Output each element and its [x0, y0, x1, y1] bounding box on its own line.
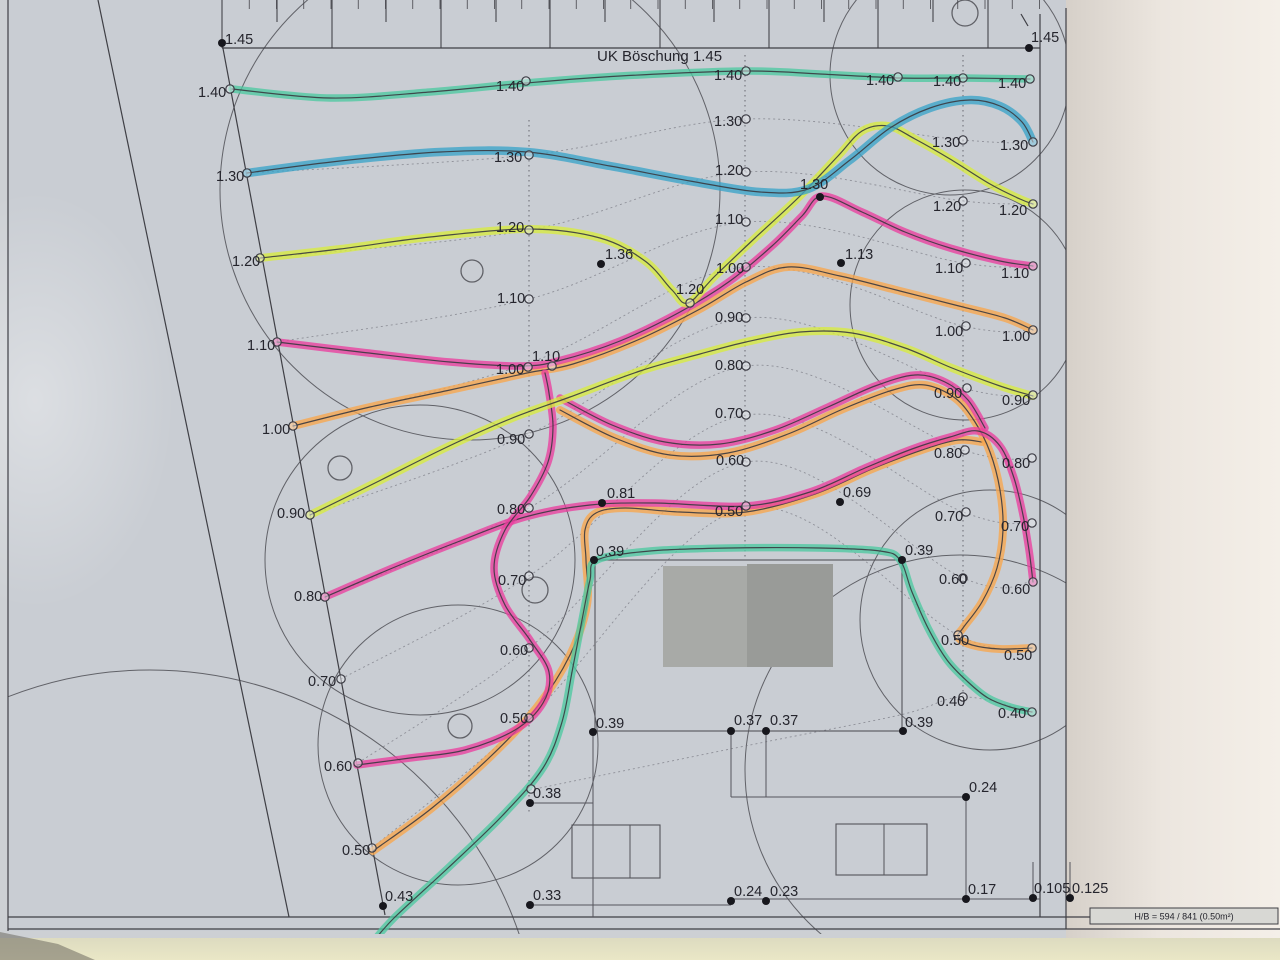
elevation-label: 0.38 [533, 786, 561, 802]
elevation-label: 1.10 [935, 261, 963, 277]
elevation-label: 1.20 [676, 282, 704, 298]
elevation-label: 1.30 [800, 177, 828, 193]
building-roof [747, 564, 833, 667]
elevation-label: 1.36 [605, 247, 633, 263]
elevation-label: 1.30 [932, 135, 960, 151]
elevation-label: 1.20 [496, 220, 524, 236]
station-circle [525, 504, 533, 512]
elevation-label: 0.50 [342, 843, 370, 859]
elevation-label: 0.70 [935, 509, 963, 525]
station-circle [963, 384, 971, 392]
elevation-label: 1.00 [496, 362, 524, 378]
elevation-label: 0.17 [968, 882, 996, 898]
elevation-label: 1.20 [933, 199, 961, 215]
elevation-label: 1.40 [998, 76, 1026, 92]
plan-title: UK Böschung 1.45 [597, 48, 722, 65]
elevation-label: 0.90 [934, 386, 962, 402]
elevation-label: 0.39 [905, 543, 933, 559]
spot-dot [837, 259, 845, 267]
elevation-label: 1.00 [1002, 329, 1030, 345]
elevation-label: 0.50 [500, 711, 528, 727]
elevation-label: 1.30 [1000, 138, 1028, 154]
elevation-label: 0.24 [734, 884, 762, 900]
elevation-label: 0.105 [1034, 881, 1070, 897]
elevation-label: 0.24 [969, 780, 997, 796]
elevation-label: 0.80 [497, 502, 525, 518]
elevation-label: 0.60 [939, 572, 967, 588]
plan-title-group: UK Böschung 1.45 [597, 48, 722, 65]
station-circle [1028, 708, 1036, 716]
station-circle [1029, 138, 1037, 146]
elevation-label: 0.37 [734, 713, 762, 729]
elevation-label: 1.40 [866, 73, 894, 89]
station-circle [306, 511, 314, 519]
station-circle [524, 363, 532, 371]
scale-note-text: H/B = 594 / 841 (0.50m²) [1134, 912, 1233, 922]
elevation-label: 0.50 [715, 504, 743, 520]
station-circle [686, 299, 694, 307]
elevation-label: 1.40 [933, 74, 961, 90]
elevation-label: 1.30 [714, 114, 742, 130]
elevation-label: 1.20 [715, 163, 743, 179]
station-circle [894, 73, 902, 81]
elevation-label: 1.20 [999, 203, 1027, 219]
elevation-label: 1.30 [494, 150, 522, 166]
station-circle [337, 675, 345, 683]
elevation-label: 0.33 [533, 888, 561, 904]
elevation-label: 0.80 [715, 358, 743, 374]
elevation-label: 1.10 [247, 338, 275, 354]
elevation-label: 1.40 [496, 79, 524, 95]
station-circle [1029, 262, 1037, 270]
elevation-label: 0.70 [498, 573, 526, 589]
building-roof [663, 566, 747, 667]
elevation-label: 0.39 [905, 715, 933, 731]
elevation-label: 1.10 [1001, 266, 1029, 282]
elevation-label: 0.60 [500, 643, 528, 659]
elevation-label: 0.80 [294, 589, 322, 605]
elevation-label: 1.13 [845, 247, 873, 263]
elevation-label: 0.81 [607, 486, 635, 502]
elevation-label: 0.43 [385, 889, 413, 905]
station-circle [1026, 75, 1034, 83]
elevation-label: 1.45 [1031, 30, 1059, 46]
elevation-label: 0.70 [715, 406, 743, 422]
elevation-label: 0.90 [277, 506, 305, 522]
elevation-label: 0.80 [934, 446, 962, 462]
site-plan-svg: 1.451.401.301.201.101.000.900.800.700.60… [0, 0, 1280, 960]
station-circle [742, 67, 750, 75]
elevation-label: 1.00 [935, 324, 963, 340]
elevation-label: 0.90 [715, 310, 743, 326]
elevation-label: 1.00 [716, 261, 744, 277]
elevation-label: 1.10 [532, 349, 560, 365]
elevation-label: 1.00 [262, 422, 290, 438]
elevation-label: 0.90 [1002, 393, 1030, 409]
elevation-label: 1.10 [497, 291, 525, 307]
elevation-label: 0.40 [998, 706, 1026, 722]
elevation-label: 1.20 [232, 254, 260, 270]
spot-dot [762, 727, 770, 735]
elevation-label: 1.30 [216, 169, 244, 185]
elevation-label: 0.60 [324, 759, 352, 775]
elevation-label: 0.50 [1004, 648, 1032, 664]
elevation-label: 0.50 [941, 633, 969, 649]
elevation-label: 1.40 [198, 85, 226, 101]
elevation-label: 0.69 [843, 485, 871, 501]
scale-note-box: H/B = 594 / 841 (0.50m²) [1090, 908, 1278, 924]
station-circle [1029, 200, 1037, 208]
station-circle [525, 430, 533, 438]
station-circle [742, 115, 750, 123]
elevation-label: 0.60 [716, 453, 744, 469]
spot-dot [816, 193, 824, 201]
elevation-label: 0.39 [596, 716, 624, 732]
elevation-label: 0.40 [937, 694, 965, 710]
spot-dot [598, 499, 606, 507]
elevation-label: 0.23 [770, 884, 798, 900]
spot-dot [762, 897, 770, 905]
elevation-label: 0.70 [308, 674, 336, 690]
elevation-label: 1.10 [715, 212, 743, 228]
elevation-label: 0.37 [770, 713, 798, 729]
elevation-label: 0.70 [1001, 519, 1029, 535]
table-surface [0, 938, 1280, 960]
elevation-label: 0.60 [1002, 582, 1030, 598]
station-circle [525, 226, 533, 234]
station-circle [525, 151, 533, 159]
photographed-site-plan: 1.451.401.301.201.101.000.900.800.700.60… [0, 0, 1280, 960]
elevation-label: 0.39 [596, 544, 624, 560]
right-paper-margin [1066, 0, 1280, 945]
elevation-label: 0.125 [1072, 881, 1108, 897]
elevation-label: 0.90 [497, 432, 525, 448]
station-circle [525, 295, 533, 303]
elevation-label: 1.40 [714, 68, 742, 84]
station-circle [354, 759, 362, 767]
station-circle [226, 85, 234, 93]
elevation-label: 0.80 [1002, 456, 1030, 472]
spot-dot [597, 260, 605, 268]
elevation-label: 1.45 [225, 32, 253, 48]
